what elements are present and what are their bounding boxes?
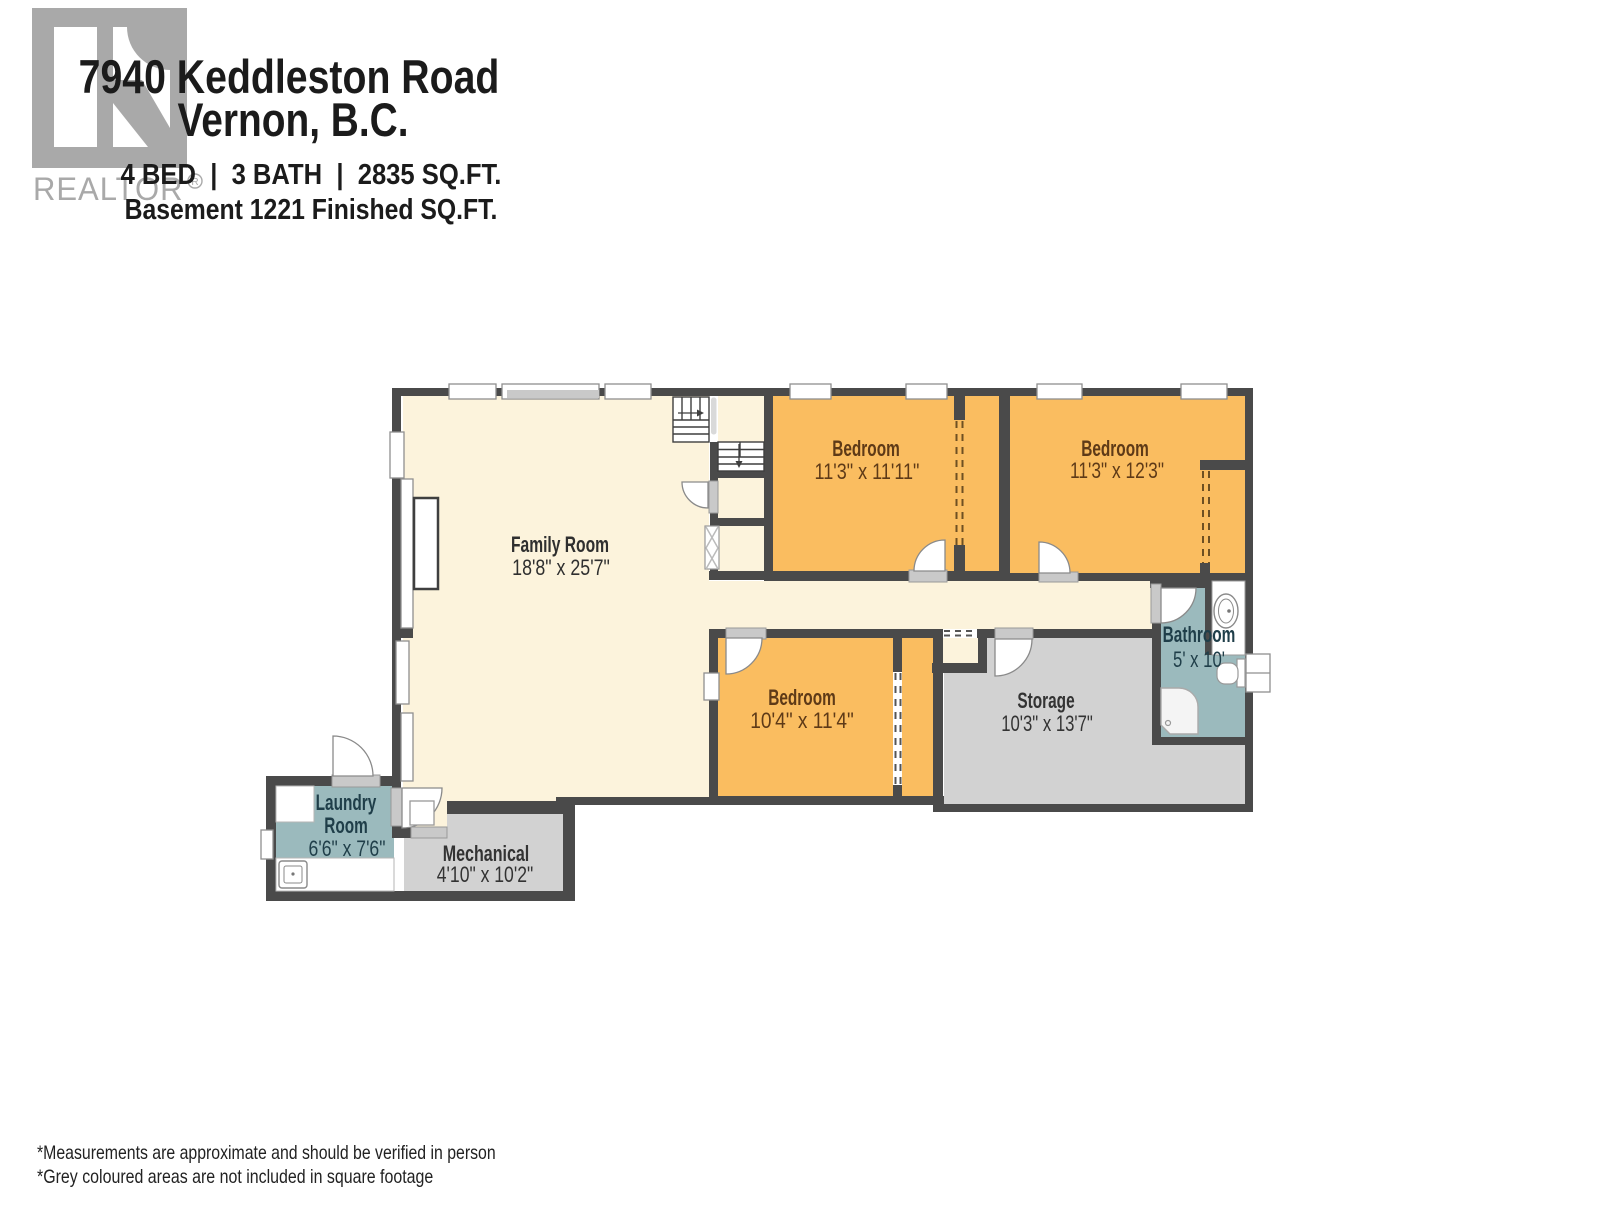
svg-text:*Grey coloured areas are not i: *Grey coloured areas are not included in…: [37, 1166, 433, 1188]
svg-text:Room: Room: [324, 814, 368, 838]
svg-text:18'8" x 25'7": 18'8" x 25'7": [512, 556, 610, 580]
svg-text:11'3" x 12'3": 11'3" x 12'3": [1070, 459, 1164, 483]
svg-text:4'10" x 10'2": 4'10" x 10'2": [437, 863, 533, 887]
svg-text:Family Room: Family Room: [511, 534, 609, 558]
svg-text:Bedroom: Bedroom: [832, 437, 900, 461]
svg-text:*Measurements are approximate: *Measurements are approximate and should…: [37, 1142, 496, 1164]
svg-text:Basement 1221 Finished SQ.FT.: Basement 1221 Finished SQ.FT.: [125, 193, 498, 225]
svg-text:Vernon, B.C.: Vernon, B.C.: [177, 95, 408, 147]
svg-text:11'3" x 11'11": 11'3" x 11'11": [815, 460, 920, 484]
svg-text:Bedroom: Bedroom: [768, 686, 836, 710]
svg-text:Laundry: Laundry: [316, 791, 377, 815]
svg-text:4 BED | 3 BATH | 2835 SQ.F: 4 BED | 3 BATH | 2835 SQ.FT.: [121, 157, 502, 190]
svg-text:5' x 10': 5' x 10': [1173, 648, 1225, 673]
svg-text:6'6" x 7'6": 6'6" x 7'6": [309, 837, 386, 861]
svg-text:Storage: Storage: [1017, 689, 1074, 713]
svg-text:Bathroom: Bathroom: [1163, 623, 1236, 647]
svg-text:10'3" x 13'7": 10'3" x 13'7": [1001, 712, 1093, 737]
svg-text:10'4" x 11'4": 10'4" x 11'4": [750, 709, 853, 734]
